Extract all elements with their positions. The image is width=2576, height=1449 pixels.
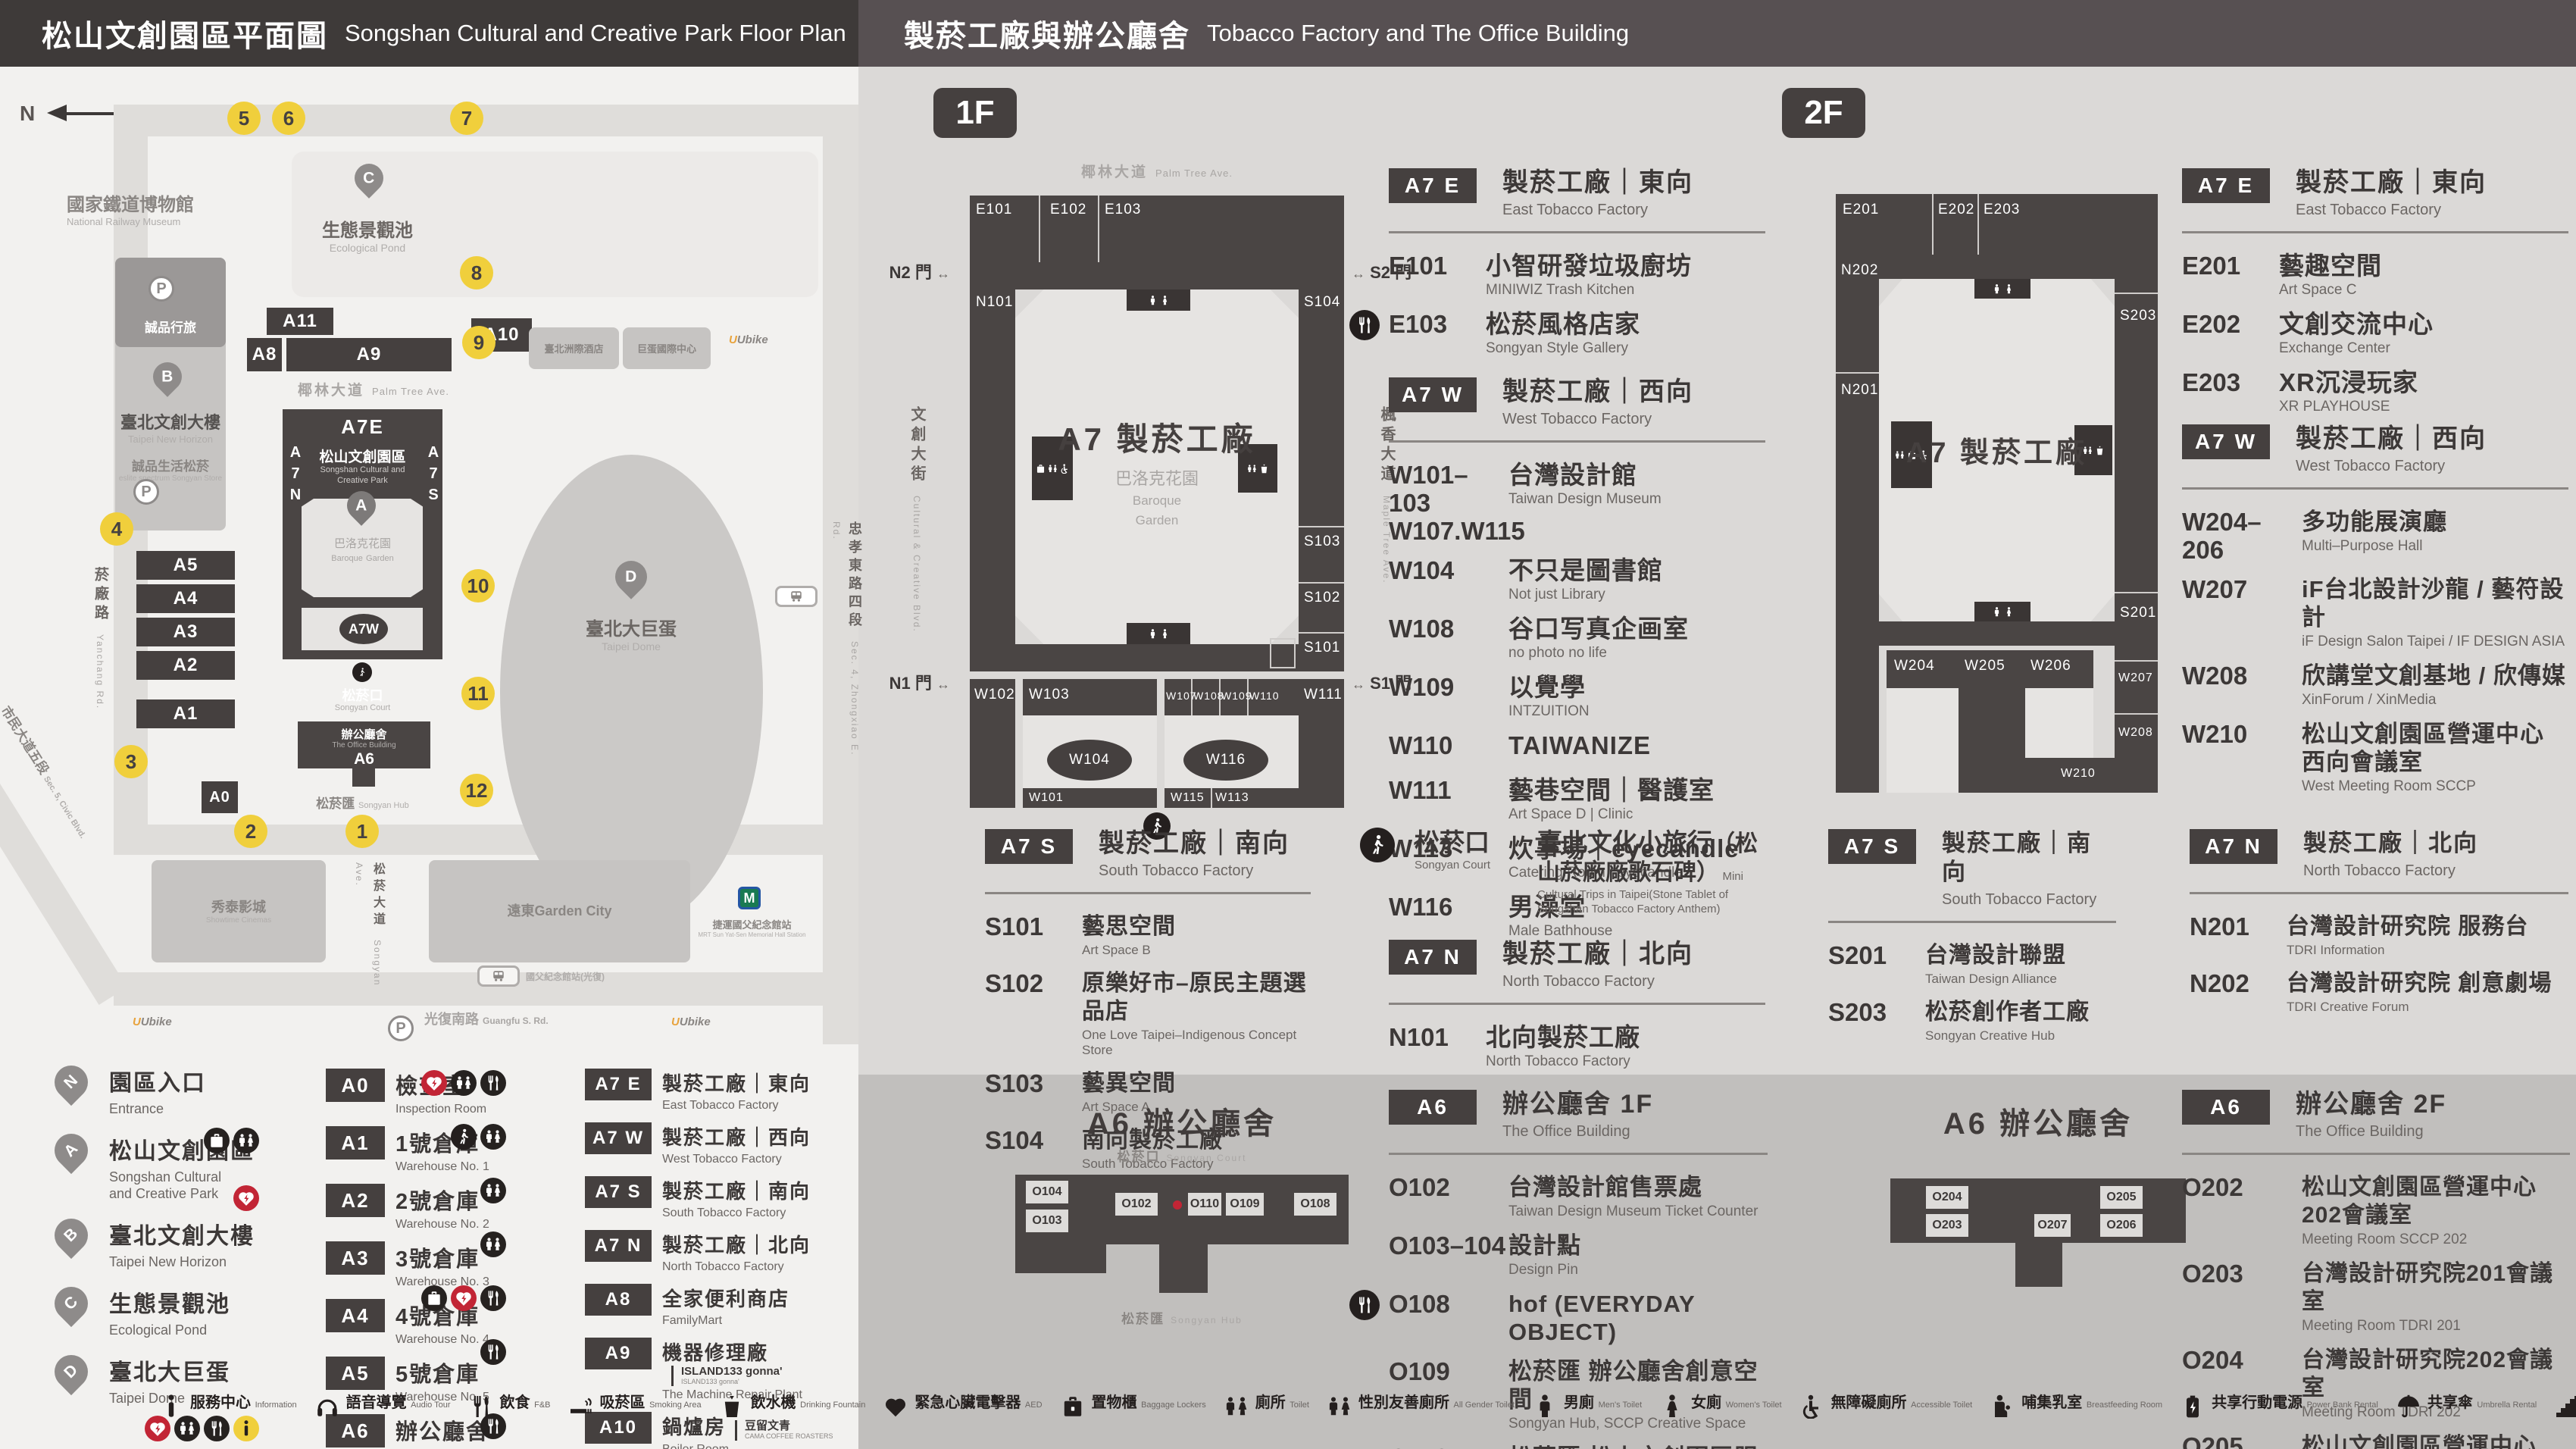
gate-number: 8: [460, 256, 493, 289]
office-room-box: O109: [1226, 1193, 1264, 1216]
legend-row: A2 2號倉庫 Warehouse No. 2: [326, 1184, 576, 1231]
strip-item: 無障礙廁所 Accessible Toilet: [1800, 1394, 1973, 1419]
toilet-pod: [1127, 623, 1190, 644]
section-badge: A7 E: [2182, 168, 2270, 203]
strip-icon: [1660, 1394, 1684, 1419]
a6-map-label: A6: [298, 750, 430, 768]
palm-ave-label: 椰林大道Palm Tree Ave.: [294, 379, 453, 399]
food-icon: [469, 1394, 493, 1419]
strip-icon: [569, 1394, 593, 1419]
songyan-ave-label: 松菸大道Songyan Ave.: [350, 862, 386, 991]
info-icon: [159, 1394, 183, 1419]
facility-icon-strip: 服務中心 Information 語音導覽 Audio Tour 飲食 F&B: [159, 1394, 2561, 1419]
plan-room-label: E103: [1105, 202, 1141, 218]
room-row: S101 藝思空間Art Space B: [985, 912, 1311, 958]
section-badge: A6: [2182, 1090, 2270, 1125]
map-building-badge: A1: [136, 699, 235, 728]
plan-room-label: W107: [1166, 690, 1197, 702]
strip-item: 飲食 F&B: [469, 1394, 551, 1419]
plan-room-label: N202: [1841, 262, 1878, 279]
room-row: N202 台灣設計研究院 創意劇場TDRI Creative Forum: [2190, 969, 2568, 1015]
gate-number: 2: [234, 815, 267, 848]
toilet-icon: [480, 1178, 506, 1203]
woman-icon: [2004, 284, 2014, 294]
legend-point-icon: N: [53, 1064, 89, 1099]
section-a7e-1f: A7 E 製菸工廠｜東向East Tobacco Factory E101 小智…: [1389, 168, 1765, 368]
strip-icon: [883, 1394, 908, 1419]
room-row: N201 台灣設計研究院 服務台TDRI Information: [2190, 912, 2568, 958]
parking-icon: P: [148, 276, 174, 302]
gate-n2-label: N2 門 ↔: [867, 259, 950, 283]
intercontinental-label: 臺北洲際酒店: [529, 341, 619, 355]
plan-room-label: W103: [1029, 687, 1070, 703]
legend-row-icons: [480, 1231, 506, 1257]
toilet-pod: [1974, 602, 2030, 621]
office-room-box: O104: [1026, 1181, 1068, 1203]
strip-item: 置物櫃 Baggage Lockers: [1061, 1394, 1206, 1419]
strip-item: 男廁 Men's Toilet: [1533, 1394, 1642, 1419]
legend-row: A7 N 製菸工廠｜北向 North Tobacco Factory: [585, 1230, 855, 1274]
plan-room-label: E202: [1938, 202, 1974, 218]
gate-number: 11: [461, 677, 495, 710]
right-title-en: Tobacco Factory and The Office Building: [1207, 20, 1629, 47]
strip-icon: [1327, 1394, 1352, 1419]
plan-room-label: W206: [2030, 658, 2071, 674]
legend-row: A7 W 製菸工廠｜西向 West Tobacco Factory: [585, 1122, 855, 1166]
food-icon: [480, 1070, 506, 1096]
strip-item: 緊急心臟電擊器 AED: [883, 1394, 1042, 1419]
strip-item: 語音導覽 Audio Tour: [315, 1394, 451, 1419]
toilet-icon: [174, 1416, 200, 1441]
a7e-map-label: A7E: [283, 415, 442, 439]
food-icon: [480, 1285, 506, 1311]
strip-icon: [1800, 1394, 1824, 1419]
office-wing-zh: 辦公廳舍: [298, 726, 430, 742]
room-row: E203 XR沉浸玩家XR PLAYHOUSE: [2182, 368, 2568, 415]
map-building-badge: A2: [136, 651, 235, 680]
youbike-icon: UUbike: [671, 1016, 711, 1028]
room-row: W207 iF台北設計沙龍 / 藝符設計iF Design Salon Taip…: [2182, 575, 2568, 650]
left-title-en: Songshan Cultural and Creative Park Floo…: [345, 20, 846, 47]
aed-icon: [233, 1185, 259, 1211]
aed-icon: [421, 1070, 447, 1096]
plan-room-label: W207: [2118, 671, 2153, 685]
legend-row: A7 S 製菸工廠｜南向 South Tobacco Factory: [585, 1176, 855, 1220]
office-room-box: O204: [1926, 1186, 1968, 1209]
showtimes-label: 秀泰影城Showtime Cinemas: [152, 897, 326, 925]
room-row: W101–103W107.W115 台灣設計館Taiwan Design Mus…: [1389, 461, 1765, 545]
map-building-badge: A4: [136, 584, 235, 613]
room-row: W104 不只是圖書館Not just Library: [1389, 556, 1765, 603]
legend-point-icon: A: [53, 1132, 89, 1167]
toilet-icon: [233, 1128, 259, 1153]
compass-arrow-icon: [47, 105, 67, 121]
gate-number: 1: [345, 815, 379, 848]
taipei-dome: [500, 455, 763, 928]
legend-row: A8 全家便利商店 FamilyMart: [585, 1284, 855, 1328]
mrt-station-label: 捷運國父紀念館站MRT Sun Yat-Sen Memorial Hall St…: [682, 917, 822, 938]
room-row: W111 藝巷空間｜醫護室Art Space D | Clinic: [1389, 776, 1765, 823]
a7-plan-title: A7 製菸工廠: [1015, 414, 1299, 460]
section-a7e-2f: A7 E 製菸工廠｜東向East Tobacco Factory E201 藝趣…: [2182, 168, 2568, 427]
section-a7n-2f: A7 N 製菸工廠｜北向North Tobacco Factory N201 台…: [2190, 829, 2568, 1026]
parking-icon: P: [388, 1016, 414, 1041]
dome-label: 臺北大巨蛋 Taipei Dome: [555, 614, 707, 653]
gate-number: 3: [114, 745, 148, 778]
person-icon: [1148, 629, 1158, 639]
plan-room-label: N101: [976, 294, 1013, 311]
room-row: O203 台灣設計研究院201會議室Meeting Room TDRI 201: [2182, 1260, 2570, 1335]
strip-icon: [1533, 1394, 1557, 1419]
food-icon: [1355, 316, 1374, 334]
left-title-zh: 松山文創園區平面圖: [42, 11, 328, 55]
strip-icon: [159, 1394, 183, 1419]
section-a7n-1f: A7 N 製菸工廠｜北向North Tobacco Factory N101 北…: [1389, 940, 1765, 1081]
legend-point-icon: C: [53, 1285, 89, 1320]
room-row: S102 原樂好市–原民主題選品店One Love Taipei–Indigen…: [985, 969, 1311, 1058]
garden-city-label: 遠東Garden City: [429, 900, 690, 920]
section-badge: A7 S: [1828, 829, 1916, 864]
gate-number: 6: [272, 102, 305, 135]
map-building-badge: A5: [136, 551, 235, 580]
person-icon: [1992, 607, 2002, 617]
strip-icon: [469, 1394, 493, 1419]
audio-icon: [315, 1394, 339, 1419]
legend-row-icons: [421, 1285, 506, 1311]
plan-room-label: W208: [2118, 726, 2153, 740]
plan-room-label: S101: [1304, 640, 1340, 656]
water-icon: [720, 1394, 744, 1419]
plan-room-label: E102: [1050, 202, 1086, 218]
locker-icon: [204, 1128, 230, 1153]
songyan-hub-label: 松菸匯 Songyan Hub: [283, 793, 442, 812]
plan-room-label: S102: [1304, 590, 1340, 606]
strip-icon: [1061, 1394, 1085, 1419]
legend-col-b: A7 E 製菸工廠｜東向 East Tobacco Factory A7 W 製…: [585, 1069, 855, 1449]
room-row: N101 北向製菸工廠North Tobacco Factory: [1389, 1023, 1765, 1070]
section-badge: A7 W: [1389, 377, 1477, 412]
b-building-label: 臺北文創大樓 Taipei New Horizon 誠品生活松菸 eslite …: [98, 409, 242, 483]
strip-icon: [720, 1394, 744, 1419]
strip-item: 共享行動電源 Power Bank Rental: [2181, 1394, 2378, 1419]
map-building-badge: A3: [136, 618, 235, 646]
plan-room-label: W108: [1193, 690, 1224, 702]
strip-item: 吸菸區 Smoking Area: [569, 1394, 702, 1419]
umbrella-icon: [2396, 1394, 2421, 1419]
section-a7w-2f: A7 W 製菸工廠｜西向West Tobacco Factory W204–20…: [2182, 424, 2568, 806]
office-2f-diagram: A6 辦公廳舍 O204O205O203O207O206: [1879, 1099, 2197, 1379]
poster: 松山文創園區平面圖 Songshan Cultural and Creative…: [0, 0, 2576, 1449]
youbike-icon: UUbike: [133, 1016, 172, 1028]
room-row: S203 松菸創作者工廠Songyan Creative Hub: [1828, 998, 2116, 1044]
toilet-icon: [451, 1070, 477, 1096]
toilet-icon: [480, 1124, 506, 1150]
info-icon: [233, 1416, 259, 1441]
strip-item: 飲水機 Drinking Fountain: [720, 1394, 866, 1419]
legend-row: A9 機器修理廠ISLAND133 gonna'ISLAND133 gonna'…: [585, 1338, 855, 1402]
food-icon: [204, 1416, 230, 1441]
strip-icon: [1224, 1394, 1249, 1419]
plan-room-label: W104: [1047, 740, 1132, 781]
office-room-box: O108: [1294, 1193, 1336, 1216]
road-bottom: [114, 972, 823, 1006]
section-badge: A7 W: [2182, 424, 2270, 459]
office-room-box: O102: [1115, 1193, 1158, 1216]
gate-number: 12: [460, 774, 493, 807]
plan-room-label: W204: [1894, 658, 1935, 674]
strip-item: 廁所 Toilet: [1224, 1394, 1309, 1419]
plan-room-label: W101: [1029, 791, 1064, 805]
walk-icon: [352, 662, 372, 682]
right-header: 製菸工廠與辦公廳舍 Tobacco Factory and The Office…: [858, 0, 2576, 67]
office-1f-diagram: A6 辦公廳舍 松菸口Songyan Court O104O103O102O11…: [1000, 1099, 1364, 1379]
bus-stop-icon: [477, 965, 520, 987]
strip-item: 階梯 Stairs: [2555, 1394, 2576, 1419]
parking-icon: P: [133, 479, 159, 505]
office-room-box: O207: [2034, 1214, 2071, 1237]
room-row: E103 松菸風格店家Songyan Style Gallery: [1389, 310, 1765, 357]
aed-dot-icon: [1173, 1200, 1182, 1210]
room-row: E101 小智研發垃圾廚坊MINIWIZ Trash Kitchen: [1389, 252, 1765, 299]
park-name-label: 松山文創園區: [283, 446, 442, 466]
plan-room-label: S104: [1304, 294, 1340, 311]
powerbank-icon: [2181, 1394, 2205, 1419]
room-row: S201 台灣設計聯盟Taiwan Design Alliance: [1828, 941, 2116, 987]
legend-point-icon: D: [53, 1354, 89, 1388]
room-row: W110 TAIWANIZE: [1389, 731, 1765, 765]
plan-room-label: W111: [1304, 687, 1343, 703]
strip-item: 服務中心 Information: [159, 1394, 297, 1419]
left-header: 松山文創園區平面圖 Songshan Cultural and Creative…: [0, 0, 900, 67]
person-icon: [1992, 284, 2002, 294]
cc-blvd-label: 文創大街Cultural & Creative Blvd.: [908, 406, 926, 649]
room-row: W109 以覺學INTZUITION: [1389, 673, 1765, 720]
toilet-pod: [1974, 279, 2030, 299]
songyan-hub-sub-label: 松菸匯Songyan Hub: [1000, 1308, 1364, 1327]
floor1-plan: 椰林大道Palm Tree Ave. A7 製菸工廠 巴洛克花園 Baroque: [956, 186, 1358, 808]
floor2-plan: A7 製菸工廠 E201E202E203N202N201S203S201W204…: [1824, 186, 2169, 793]
bus-stop-icon: [775, 586, 818, 607]
person-icon: [1148, 296, 1158, 305]
smoking-icon: [569, 1394, 593, 1419]
plan-room-label: S103: [1304, 534, 1340, 550]
youbike-icon: UUbike: [729, 333, 768, 346]
toilet-icon: [480, 1231, 506, 1257]
legend-row-icons: [480, 1178, 506, 1203]
strip-icon: [2181, 1394, 2205, 1419]
section-badge: A7 N: [2190, 829, 2277, 864]
legend-point-row: C 生態景觀池 Ecological Pond: [53, 1285, 318, 1338]
room-row: O205 松山文創園區營運中心201會議室Meeting Room SCCP 2…: [2182, 1432, 2570, 1449]
plan-room-label: S201: [2120, 605, 2156, 621]
room-row: W204–206 多功能展演廳Multi–Purpose Hall: [2182, 508, 2568, 564]
strip-icon: [315, 1394, 339, 1419]
legend-row: A6 辦公廳舍 The Office Building: [326, 1414, 576, 1449]
legend-row-icons: [451, 1124, 506, 1150]
legend-point-row: N 園區入口 Entrance: [53, 1064, 318, 1117]
dome-center-label: 巨蛋國際中心: [623, 341, 711, 355]
office-diagram-title: A6 辦公廳舍: [1000, 1099, 1364, 1143]
locker-icon: [421, 1285, 447, 1311]
woman-icon: [1160, 629, 1170, 639]
a7w-map-label: A7W: [339, 614, 388, 644]
room-icon: [1349, 1290, 1380, 1320]
plan-room-label: W110: [1249, 690, 1280, 702]
wheelchair-icon: [1800, 1394, 1824, 1419]
legend-row-icons: [233, 1185, 259, 1211]
stairs-icon: [2555, 1394, 2576, 1419]
gate-number: 9: [462, 326, 496, 359]
section-a7s-2f: A7 S 製菸工廠｜南向South Tobacco Factory S201 台…: [1828, 829, 2116, 1055]
office-room-box: O206: [2100, 1214, 2143, 1237]
gate-n1-label: N1 門 ↔: [867, 670, 950, 694]
pond-label: 生態景觀池 Ecological Pond: [299, 215, 436, 254]
office-room-box: O205: [2100, 1186, 2143, 1209]
strip-icon: [2396, 1394, 2421, 1419]
person-icon: [1533, 1394, 1557, 1419]
strip-item: 女廁 Women's Toilet: [1660, 1394, 1781, 1419]
songyan-court-sub-label: 松菸口Songyan Court: [1000, 1146, 1364, 1165]
floor-1f-badge: 1F: [933, 88, 1017, 138]
a7-plan-title: A7 製菸工廠: [1879, 429, 2115, 471]
legend-row-icons: [480, 1339, 506, 1365]
legend-points: N 園區入口 Entrance A 松山文創園區 Songshan Cultur…: [53, 1064, 318, 1422]
strip-icon: [1990, 1394, 2015, 1419]
plan-room-label: W102: [974, 687, 1015, 703]
legend-point-row: A 松山文創園區 Songshan Cultural and Creative …: [53, 1132, 318, 1202]
food-icon: [1355, 1296, 1374, 1314]
mrt-logo-icon: M: [738, 887, 761, 909]
room-row: E201 藝趣空間Art Space C: [2182, 252, 2568, 299]
zhongxiao-rd-label: 忠孝東路四段Sec. 4, Zhongxiao E. Rd.: [827, 521, 864, 771]
toilet-icon: [1224, 1394, 1249, 1419]
baroque-map-label: 巴洛克花園 Baroque Garden: [283, 535, 442, 564]
plan-room-label: E101: [976, 202, 1012, 218]
legend-row-icons: [421, 1070, 506, 1096]
section-badge: A7 E: [1389, 168, 1477, 203]
guangfu-rd-label: 光復南路 Guangfu S. Rd.: [424, 1009, 549, 1028]
gate-number: 7: [450, 102, 483, 135]
gate-number: 4: [100, 512, 133, 546]
office-stem: [352, 768, 375, 787]
right-title-zh: 製菸工廠與辦公廳舍: [904, 11, 1190, 55]
legend-point-icon: B: [53, 1217, 89, 1252]
room-row: O103–104 設計點Design Pin: [1389, 1231, 1768, 1278]
legend-row: A3 3號倉庫 Warehouse No. 3: [326, 1241, 576, 1289]
strip-item: 性別友善廁所 All Gender Toilet: [1327, 1394, 1515, 1419]
legend-row-icons: [145, 1416, 259, 1441]
locker-icon: [1061, 1394, 1085, 1419]
palm-ave-plan-label: 椰林大道Palm Tree Ave.: [956, 161, 1358, 181]
plan-room-label: W115: [1171, 791, 1205, 805]
office-diagram-title: A6 辦公廳舍: [1879, 1099, 2197, 1143]
yanchang-rd-label: 菸廠路Yanchang Rd.: [91, 567, 109, 749]
park-map: N 國家鐵道博物館 National Railway Museum C 生態景觀…: [0, 67, 858, 1058]
gate-number: 10: [461, 569, 495, 602]
map-building-badge: A0: [202, 781, 238, 813]
songyan-court-map-zh: 松菸口: [283, 685, 442, 705]
room-row: W208 欣講堂文創基地 / 欣傳媒XinForum / XinMedia: [2182, 662, 2568, 709]
compass-arrow-tail: [67, 112, 114, 115]
walk-icon: [1360, 828, 1395, 862]
railway-museum-label: 國家鐵道博物館 National Railway Museum: [67, 189, 194, 227]
room-row: O110 松菸匯 松山文創園區服務中心Songyan Hub, SCCP Inf…: [1389, 1444, 1768, 1449]
office-wing-en: The Office Building: [298, 741, 430, 750]
woman-icon: [1160, 296, 1170, 305]
room-row: W210 松山文創園區營運中心西向會議室West Meeting Room SC…: [2182, 720, 2568, 795]
walk-icon: [451, 1124, 477, 1150]
nursing-icon: [1990, 1394, 2015, 1419]
aed-icon: [145, 1416, 170, 1441]
legend-row-icons: [204, 1128, 259, 1153]
park-name-en2: Creative Park: [283, 476, 442, 485]
aed-icon: [451, 1285, 477, 1311]
woman-icon: [2004, 607, 2014, 617]
plan-room-label: E201: [1843, 202, 1879, 218]
baroque-garden-label: 巴洛克花園 Baroque Garden: [1015, 465, 1299, 529]
strip-item: 共享傘 Umbrella Rental: [2396, 1394, 2537, 1419]
road-civic-blvd: [0, 711, 127, 1005]
strip-icon: [2555, 1394, 2576, 1419]
office-room-box: O110: [1188, 1193, 1221, 1216]
office-room-box: O203: [1926, 1214, 1968, 1237]
room-row: O108 hof (EVERYDAY OBJECT): [1389, 1290, 1768, 1346]
toilet-icon: [1327, 1394, 1352, 1419]
map-building-badge: A9: [286, 338, 452, 371]
park-name-en1: Songshan Cultural and: [283, 465, 442, 474]
section-badge: A6: [1389, 1090, 1477, 1125]
room-row: E202 文創交流中心Exchange Center: [2182, 310, 2568, 357]
toilet-pod: [1127, 289, 1190, 311]
plan-room-label: W113: [1215, 791, 1249, 805]
room-row: O202 松山文創園區營運中心202會議室Meeting Room SCCP 2…: [2182, 1173, 2570, 1248]
map-building-badge: A8: [247, 338, 282, 371]
map-building-badge: A11: [267, 308, 333, 335]
plan-room-label: S203: [2120, 308, 2156, 324]
room-icon: [1349, 310, 1380, 340]
eslite-hotel-label: 誠品行旅: [115, 317, 226, 336]
compass-n-label: N: [20, 102, 35, 126]
section-badge: A7 N: [1389, 940, 1477, 975]
room-row: O102 台灣設計館售票處Taiwan Design Museum Ticket…: [1389, 1173, 1768, 1220]
plan-room-label: W210: [2061, 767, 2096, 781]
room-row: W108 谷口写真企画室no photo no life: [1389, 615, 1765, 662]
legend-point-row: B 臺北文創大樓 Taipei New Horizon: [53, 1217, 318, 1270]
food-icon: [480, 1339, 506, 1365]
gate-number: 5: [227, 102, 261, 135]
plan-room-label: N201: [1841, 382, 1878, 399]
map-legend: N 園區入口 Entrance A 松山文創園區 Songshan Cultur…: [0, 1058, 858, 1385]
legend-row: A7 E 製菸工廠｜東向 East Tobacco Factory: [585, 1069, 855, 1113]
plan-room-label: W109: [1221, 690, 1252, 702]
plan-room-label: E203: [1984, 202, 2020, 218]
songyan-court-note: 松菸口Songyan Court 臺北文化小旅行（松山菸廠廠歌石碑） Mini …: [1360, 828, 1769, 916]
aed-icon: [883, 1394, 908, 1419]
locker-room-box: [1270, 638, 1296, 668]
woman-icon: [1660, 1394, 1684, 1419]
plan-room-label: W116: [1183, 740, 1268, 781]
section-badge: A7 S: [985, 829, 1073, 864]
office-room-box: O103: [1026, 1210, 1068, 1232]
bus-stop-label: 國父紀念館站(光復): [526, 970, 605, 983]
songyan-court-map-en: Songyan Court: [283, 703, 442, 712]
floor-2f-badge: 2F: [1782, 88, 1865, 138]
strip-item: 哺集乳室 Breastfeeding Room: [1990, 1394, 2162, 1419]
plan-room-label: W205: [1965, 658, 2005, 674]
